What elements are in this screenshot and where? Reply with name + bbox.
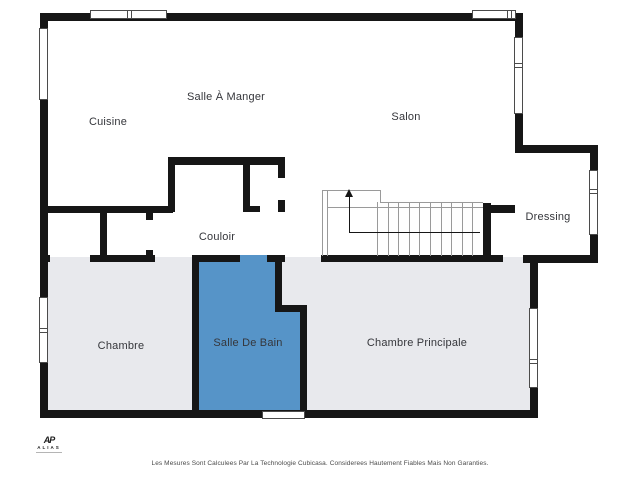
wall bbox=[275, 258, 282, 312]
alias-logo-monogram: AP bbox=[34, 436, 64, 445]
wall bbox=[278, 160, 285, 178]
stair-tread-line bbox=[441, 202, 442, 256]
window bbox=[514, 37, 523, 114]
wall bbox=[192, 255, 240, 262]
stair-direction-line bbox=[349, 196, 350, 233]
wall bbox=[168, 160, 175, 212]
window bbox=[90, 10, 167, 19]
alias-logo: AP ALIAS bbox=[34, 436, 64, 453]
stair-tread-line bbox=[380, 190, 381, 202]
wall bbox=[321, 255, 487, 262]
wall bbox=[243, 160, 250, 212]
arrow-up-icon bbox=[345, 189, 353, 197]
window-divider bbox=[507, 11, 512, 18]
room-label-couloir: Couloir bbox=[199, 231, 235, 243]
stair-tread-line bbox=[430, 202, 431, 256]
wall bbox=[278, 200, 285, 212]
wall bbox=[146, 210, 153, 220]
stair-tread-line bbox=[409, 202, 410, 256]
room-label-salle-de-bain: Salle De Bain bbox=[213, 337, 282, 349]
wall bbox=[243, 206, 260, 212]
stair-tread-line bbox=[419, 202, 420, 256]
room-label-salon: Salon bbox=[391, 111, 420, 123]
stair-tread-line bbox=[398, 202, 399, 256]
bathroom-floor-area bbox=[196, 255, 282, 413]
room-label-salle-a-manger: Salle À Manger bbox=[187, 91, 265, 103]
stair-tread-line bbox=[327, 207, 483, 208]
window bbox=[262, 411, 305, 419]
window-divider bbox=[515, 63, 522, 68]
wall bbox=[490, 205, 515, 213]
stair-tread-line bbox=[327, 190, 328, 256]
window bbox=[39, 28, 48, 100]
window bbox=[472, 10, 516, 19]
wall bbox=[40, 255, 50, 262]
stair-tread-line bbox=[462, 202, 463, 256]
alias-logo-name: ALIAS bbox=[34, 445, 64, 451]
room-label-chambre: Chambre bbox=[98, 340, 145, 352]
window-divider bbox=[127, 11, 132, 18]
room-label-cuisine: Cuisine bbox=[89, 116, 127, 128]
wall bbox=[192, 258, 199, 415]
window-divider bbox=[530, 359, 537, 364]
stair-tread-line bbox=[377, 202, 378, 256]
window bbox=[529, 308, 538, 388]
stair-tread-line bbox=[388, 202, 389, 256]
measurement-disclaimer: Les Mesures Sont Calculees Par La Techno… bbox=[0, 460, 640, 467]
wall bbox=[300, 308, 307, 415]
stair-tread-line bbox=[322, 190, 323, 256]
window bbox=[589, 170, 598, 235]
wall bbox=[90, 255, 155, 262]
stair-tread-line bbox=[380, 202, 483, 203]
wall bbox=[168, 157, 285, 165]
wall bbox=[521, 145, 598, 153]
floorplan-canvas: Cuisine Salle À Manger Salon Couloir Dre… bbox=[0, 0, 640, 480]
stair-direction-line bbox=[349, 232, 480, 233]
room-label-dressing: Dressing bbox=[525, 211, 570, 223]
alias-logo-rule bbox=[36, 452, 62, 453]
stair-tread-line bbox=[451, 202, 452, 256]
window bbox=[39, 297, 48, 363]
wall bbox=[161, 206, 175, 212]
window-divider bbox=[40, 328, 47, 333]
room-label-chambre-principale: Chambre Principale bbox=[367, 337, 467, 349]
wall bbox=[44, 206, 173, 213]
window-divider bbox=[590, 189, 597, 194]
stair-tread-line bbox=[472, 202, 473, 256]
